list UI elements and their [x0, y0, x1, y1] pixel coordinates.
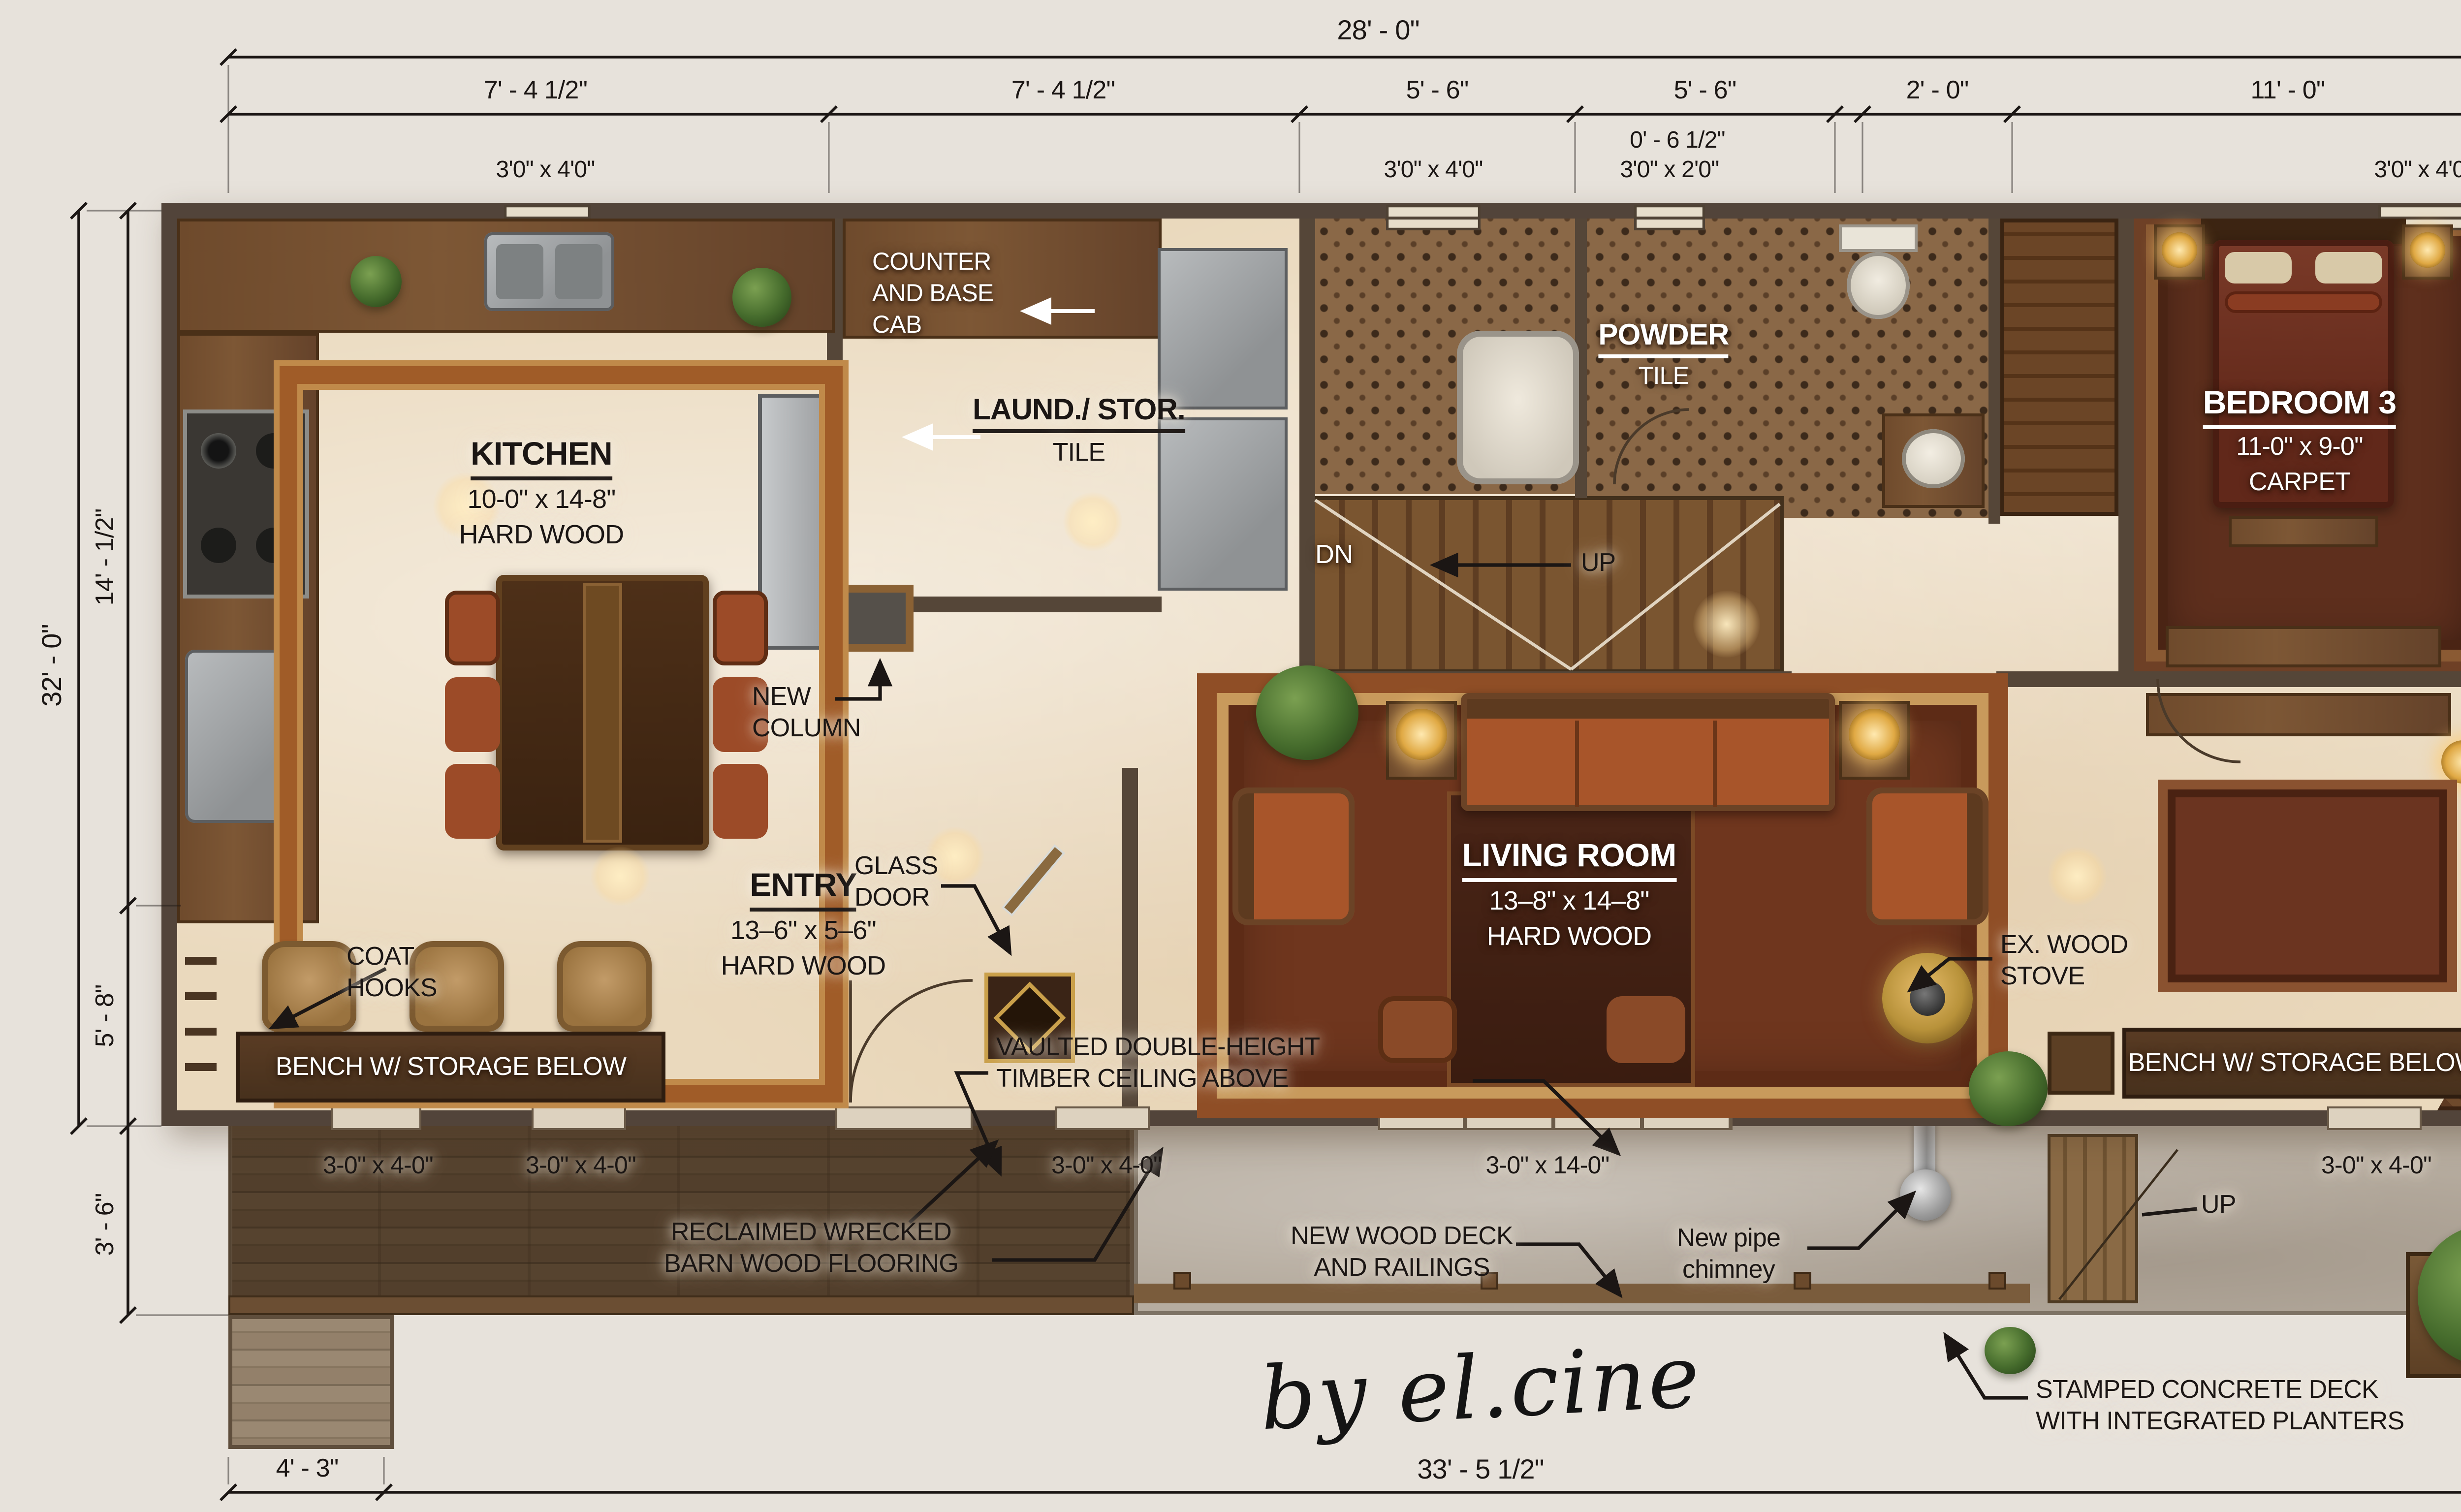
- entry-door-opening: [835, 1106, 973, 1130]
- wall-closet-bedroom: [2118, 219, 2134, 687]
- room-title-entry: ENTRY: [750, 868, 856, 912]
- bench-left-label: BENCH W/ STORAGE BELOW: [276, 1051, 626, 1081]
- window-bath-top: [1386, 205, 1481, 230]
- bedside-lamp: [2162, 232, 2197, 268]
- window-powder-top: [1634, 205, 1705, 230]
- deck-railing-left: [228, 1295, 1134, 1315]
- burner: [201, 433, 236, 469]
- toilet-bowl: [1847, 252, 1910, 319]
- console-table: [2146, 693, 2451, 736]
- counter-note-line: COUNTER: [872, 248, 991, 276]
- artist-signature: by el.cine: [1258, 1327, 1704, 1451]
- dim-top-seg-small: 0' - 6 1/2": [1630, 126, 1725, 154]
- bench-right-label: BENCH W/ STORAGE BELOW: [2128, 1047, 2461, 1077]
- room-floor-living: HARD WOOD: [1487, 921, 1652, 951]
- wall-stairs-living: [1299, 671, 1792, 687]
- new-deck-note: NEW WOOD DECK: [1291, 1221, 1513, 1250]
- living-title-text: LIVING ROOM: [1462, 839, 1676, 882]
- armchair: [1232, 787, 1355, 925]
- stairs-dn-label: DN: [1315, 539, 1353, 569]
- sofa-cushion-lines: [1575, 721, 1579, 807]
- deck-railing-right: [1134, 1284, 2030, 1303]
- dim-top-seg: 5' - 6": [1406, 75, 1469, 104]
- reclaimed-flooring-note: BARN WOOD FLOORING: [664, 1248, 958, 1278]
- door-opening: [1055, 1106, 1150, 1130]
- deck-grass-plant: [1985, 1327, 2036, 1374]
- dim-top-seg: 2' - 0": [1906, 75, 1969, 104]
- dim-top-seg: 7' - 4 1/2": [1011, 75, 1115, 104]
- coat-hooks-note: HOOKS: [347, 973, 437, 1002]
- dim-bottom-porch: 4' - 3": [276, 1453, 339, 1482]
- deck-opening-label: 3-0" x 4-0": [323, 1152, 433, 1179]
- table-runner: [583, 583, 622, 843]
- entry-title-text: ENTRY: [750, 868, 856, 912]
- dim-top-seg: 5' - 6": [1674, 75, 1736, 104]
- wicker-chair: [557, 941, 652, 1032]
- room-size-kitchen: 10-0" x 14-8": [467, 484, 615, 514]
- new-column-note: NEW: [752, 681, 811, 711]
- ceiling-light: [1063, 492, 1122, 551]
- dim-top-overall: 28' - 0": [1337, 14, 1419, 45]
- room-floor-bedroom: CARPET: [2249, 467, 2350, 496]
- sofa: [1461, 693, 1835, 811]
- bed-bolster: [2225, 291, 2382, 313]
- wall-bedroom-living: [1996, 671, 2461, 687]
- toilet-tank: [1839, 224, 1918, 252]
- powder-sink: [1902, 429, 1965, 488]
- barn-wood-deck-lower: [228, 1315, 394, 1449]
- entry-palm: [1256, 665, 1358, 760]
- glass-door-note: DOOR: [854, 882, 930, 912]
- dim-left-seg: 3' - 6": [90, 1194, 119, 1256]
- wicker-chair: [262, 941, 356, 1032]
- folding-glass-opening: [1378, 1106, 1733, 1130]
- door-opening: [2327, 1106, 2422, 1130]
- deck-stairs-up: [2048, 1134, 2138, 1303]
- stairs-up-label: UP: [1581, 547, 1615, 577]
- vaulted-ceiling-note: TIMBER CEILING ABOVE: [996, 1063, 1289, 1093]
- stamped-concrete-note: WITH INTEGRATED PLANTERS: [2036, 1406, 2404, 1435]
- table-lamp: [1396, 709, 1447, 760]
- wood-stove-flue: [1910, 980, 1945, 1016]
- room-size-entry: 13–6" x 5–6": [730, 915, 876, 945]
- ceiling-light: [591, 847, 650, 906]
- window-label: 3'0" x 2'0": [1620, 156, 1719, 183]
- indoor-plant: [1969, 1051, 2048, 1126]
- ottoman: [1378, 996, 1457, 1063]
- counter-note-line: AND BASE: [872, 280, 994, 307]
- wall-powder-right: [1988, 219, 2000, 524]
- ceiling-light: [1693, 591, 1760, 658]
- floor-plan-sheet: 28' - 0" 7' - 4 1/2" 7' - 4 1/2" 5' - 6"…: [0, 0, 2461, 1512]
- dim-bottom-overall: 33' - 5 1/2": [1417, 1453, 1544, 1484]
- bedroom-dresser: [2166, 626, 2441, 667]
- door-opening: [532, 1106, 626, 1130]
- window-label: 3'0" x 4'0": [2374, 156, 2461, 183]
- closet-strip: [2000, 219, 2118, 516]
- glass-door-note: GLASS: [854, 850, 938, 880]
- bathtub: [1457, 331, 1579, 484]
- stamped-concrete-note: STAMPED CONCRETE DECK: [2036, 1374, 2378, 1404]
- room-title-powder: POWDER: [1598, 319, 1729, 358]
- new-deck-note: AND RAILINGS: [1314, 1252, 1489, 1282]
- bed-end-bench: [2229, 516, 2378, 547]
- kitchen-sink-basins: [496, 244, 543, 299]
- laundry-upper-cab: [1158, 248, 1288, 409]
- bedside-lamp: [2410, 232, 2445, 268]
- bedroom-title-text: BEDROOM 3: [2203, 386, 2397, 429]
- laundry-title-text: LAUND./ STOR.: [973, 394, 1185, 433]
- ex-wood-stove-note: STOVE: [2000, 961, 2084, 990]
- room-floor-entry: HARD WOOD: [721, 951, 886, 980]
- room-floor-powder: TILE: [1639, 362, 1689, 390]
- door-opening: [331, 1106, 421, 1130]
- railing-post: [1794, 1272, 1811, 1290]
- ex-wood-stove-note: EX. WOOD: [2000, 929, 2128, 959]
- railing-post: [1988, 1272, 2006, 1290]
- room-title-kitchen: KITCHEN: [471, 437, 612, 480]
- window-label: 3'0" x 4'0": [496, 156, 595, 183]
- wall-mud-stairs: [1299, 219, 1315, 687]
- table-lamp: [1849, 709, 1900, 760]
- deck-opening-label: 3-0" x 4-0": [1051, 1152, 1162, 1179]
- dim-left-overall: 32' - 0": [35, 624, 67, 706]
- vaulted-ceiling-note: VAULTED DOUBLE-HEIGHT: [996, 1032, 1320, 1061]
- washer-dryer: [1158, 417, 1288, 591]
- room-title-laundry: LAUND./ STOR.: [973, 394, 1185, 433]
- railing-post: [1173, 1272, 1191, 1290]
- powder-title-text: POWDER: [1598, 319, 1729, 358]
- room-size-bedroom: 11-0" x 9-0": [2236, 431, 2363, 461]
- window-label: 3'0" x 4'0": [1384, 156, 1483, 183]
- bench-planter: [2048, 1032, 2114, 1095]
- chimney-cap: [1900, 1169, 1951, 1221]
- ceiling-light: [2048, 847, 2107, 906]
- room-floor-kitchen: HARD WOOD: [459, 520, 624, 549]
- counter-plant: [732, 268, 791, 327]
- coat-hooks-note: COAT: [347, 941, 414, 971]
- deck-opening-label: 3-0" x 4-0": [526, 1152, 636, 1179]
- armchair: [1866, 787, 1988, 925]
- deck-opening-label: 3-0" x 14-0": [1485, 1152, 1609, 1179]
- bed-pillow: [2225, 252, 2292, 283]
- counter-note-line: CAB: [872, 311, 921, 339]
- dim-top-seg: 7' - 4 1/2": [484, 75, 587, 104]
- reclaimed-flooring-note: RECLAIMED WRECKED: [671, 1217, 951, 1246]
- sitting-rug: [2158, 780, 2457, 992]
- dim-left-seg: 14' - 1/2": [90, 509, 119, 606]
- dining-chair: [445, 591, 500, 665]
- room-title-bedroom: BEDROOM 3: [2203, 386, 2397, 429]
- deck-up-label: UP: [2201, 1189, 2236, 1219]
- pipe-chimney-note: New pipe: [1677, 1223, 1780, 1252]
- deck-opening-label: 3-0" x 4-0": [2321, 1152, 2431, 1179]
- dim-top-seg: 11' - 0": [2250, 75, 2325, 104]
- counter-plant: [350, 256, 402, 307]
- coat-hooks-icons: [185, 957, 217, 1071]
- pipe-chimney-note: chimney: [1682, 1254, 1775, 1284]
- dim-left-seg: 5' - 8": [90, 985, 119, 1047]
- room-title-living: LIVING ROOM: [1462, 839, 1676, 882]
- room-size-living: 13–8" x 14–8": [1489, 886, 1649, 915]
- room-floor-laundry: TILE: [1053, 437, 1105, 467]
- kitchen-title-text: KITCHEN: [471, 437, 612, 480]
- dining-chair: [713, 591, 768, 665]
- new-column-note: COLUMN: [752, 713, 861, 742]
